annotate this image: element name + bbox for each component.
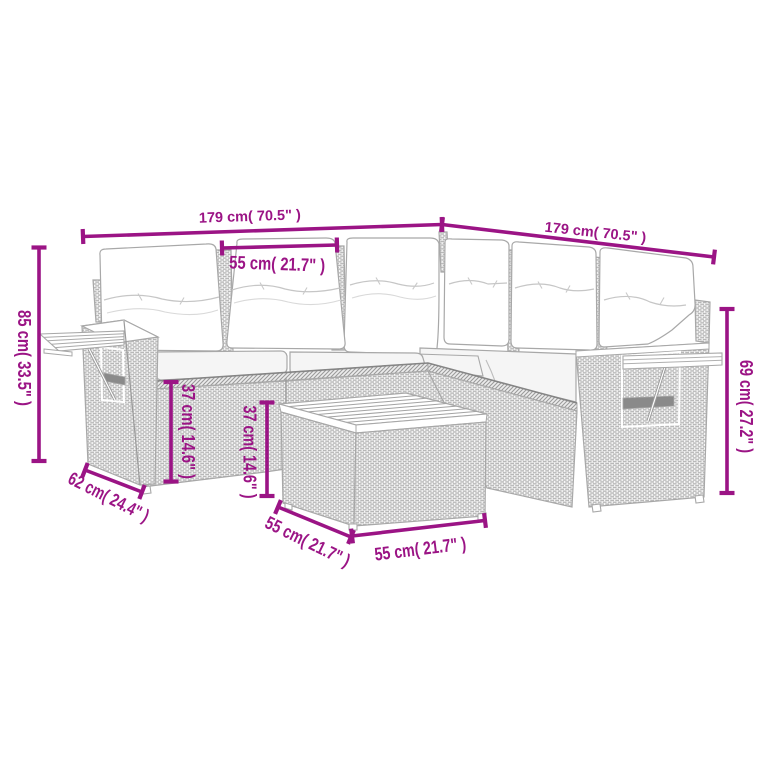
svg-text:37 cm( 14.6" ): 37 cm( 14.6" ) (240, 406, 261, 499)
svg-text:37 cm( 14.6" ): 37 cm( 14.6" ) (178, 384, 199, 479)
svg-text:55 cm( 21.7" ): 55 cm( 21.7" ) (229, 251, 326, 275)
svg-text:69 cm( 27.2" ): 69 cm( 27.2" ) (736, 360, 757, 453)
svg-text:85 cm( 33.5" ): 85 cm( 33.5" ) (14, 310, 35, 406)
svg-text:179 cm( 70.5" ): 179 cm( 70.5" ) (199, 207, 302, 226)
